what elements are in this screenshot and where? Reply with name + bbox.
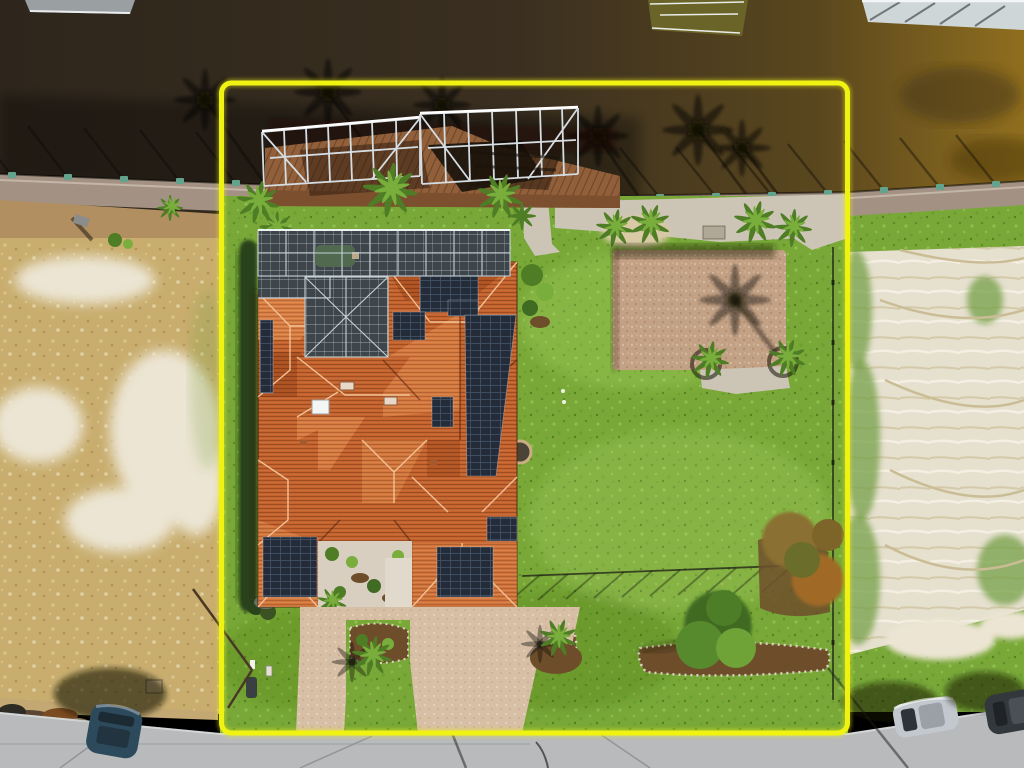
solar-array (448, 300, 478, 316)
car-roof (918, 702, 946, 730)
right-vacant-lot (826, 205, 1024, 712)
patio-top-shadow (613, 244, 775, 258)
sprinkler-dot (562, 400, 566, 404)
trash-barrel (246, 677, 257, 698)
solar-array (393, 312, 425, 340)
far-dock-gray (25, 0, 135, 14)
aerial-scene (0, 0, 1024, 768)
solar-array (487, 517, 517, 541)
water-mottling (900, 67, 1020, 123)
far-dock-olive (648, 0, 748, 36)
solar-array-west-strip (260, 320, 273, 393)
walkway-steps (703, 226, 725, 239)
patio-left-shadow (611, 250, 619, 370)
aerial-photo (0, 0, 1024, 768)
entry-walkway (385, 558, 412, 607)
pool-water (315, 245, 355, 267)
utility-box (266, 666, 272, 676)
sprinkler-dot (561, 389, 565, 393)
left-vacant-lot (0, 194, 226, 736)
house-west-shadow (250, 290, 258, 600)
solar-array (437, 547, 493, 597)
solar-array-garage (263, 537, 317, 597)
solar-array (432, 397, 453, 427)
